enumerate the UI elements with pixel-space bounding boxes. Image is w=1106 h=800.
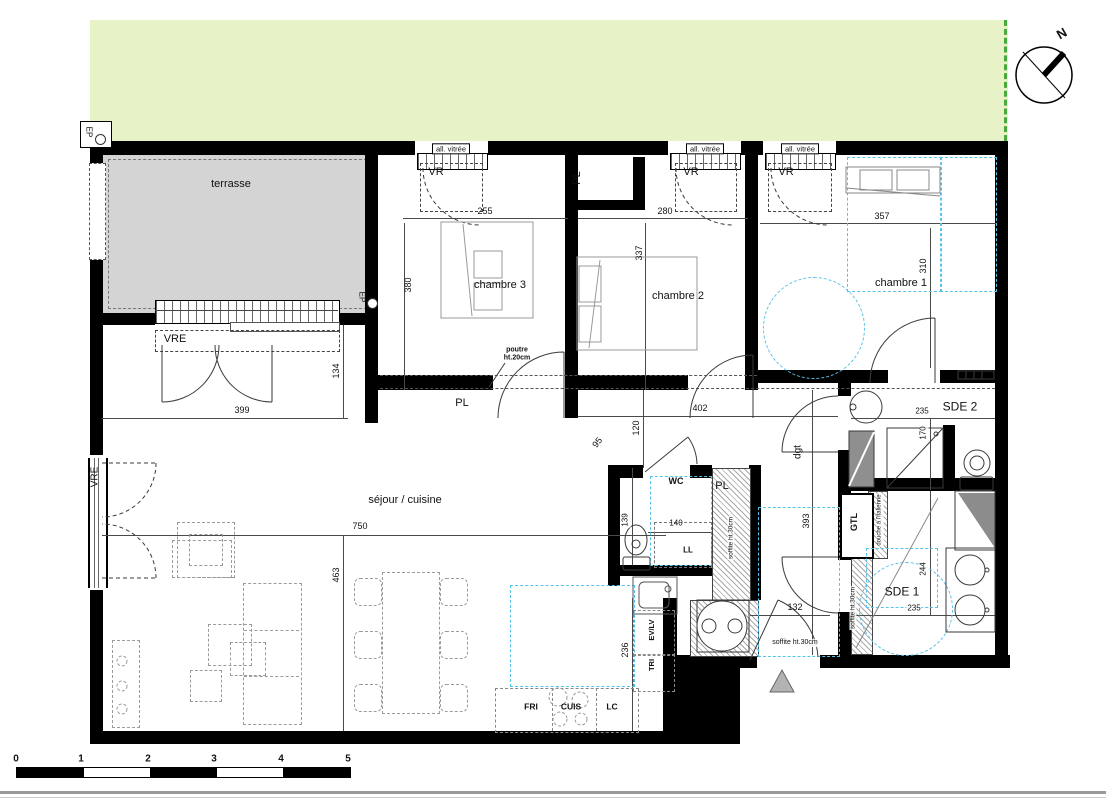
scale-bar	[16, 767, 351, 778]
closet-label-pl-shaft: PL	[715, 480, 728, 492]
furniture-chair	[354, 578, 382, 606]
scale-segment	[150, 768, 217, 777]
accessible-zone-dgt	[758, 507, 840, 657]
furniture-chair	[354, 684, 382, 712]
dim-140: 140	[669, 520, 682, 529]
turning-circle-ch1	[763, 277, 865, 379]
fixture-label-tri: TRI	[648, 659, 656, 671]
wall-segment	[838, 383, 851, 396]
closet-label-gtl: GTL	[850, 513, 860, 531]
dim-399: 399	[234, 406, 249, 416]
room-label-dgt: dgt	[793, 445, 804, 459]
annotation-douche-italienne: douche à l'italienne	[877, 493, 884, 546]
dim-236: 236	[621, 641, 631, 658]
scale-tick-2: 2	[145, 754, 151, 765]
dim-139: 139	[622, 512, 631, 527]
scale-tick-5: 5	[345, 754, 351, 765]
dim-line	[643, 390, 644, 468]
shaft-hatch-heater-alcove	[690, 600, 759, 657]
window-rail	[155, 310, 338, 311]
scale-tick-1: 1	[78, 754, 84, 765]
furniture-chair	[440, 684, 468, 712]
annotation-poutre: poutre ht.20cm	[504, 346, 530, 361]
window-label-vr-3: VR	[778, 166, 793, 178]
sde1-washbasins	[946, 548, 995, 632]
floor-plan: terrassechambre 3chambre 2chambre 1séjou…	[0, 0, 1106, 800]
dim-line	[578, 416, 838, 417]
window-label-vre-left: VRE	[90, 467, 101, 488]
scale-tick-3: 3	[211, 754, 217, 765]
compass-label-north: N	[1054, 25, 1069, 42]
wall-segment	[90, 258, 103, 455]
dim-310: 310	[919, 258, 929, 273]
furniture-plant	[112, 640, 140, 728]
drain-label-ep-1: EP	[84, 127, 93, 138]
dim-line	[404, 223, 405, 390]
dim-255: 255	[477, 207, 492, 217]
furniture-chair	[354, 631, 382, 659]
wall-segment	[488, 141, 668, 155]
dim-line	[102, 418, 348, 419]
dim-95: 95	[591, 436, 605, 450]
wall-segment	[608, 465, 643, 478]
furniture-sofa-cushion-line	[244, 676, 299, 677]
furniture-sofa	[243, 583, 302, 725]
kitchen-counter-divider	[596, 688, 597, 731]
fixture-label-ev-lv: EV/LV	[648, 619, 656, 640]
drain-label-ep-2: EP	[357, 292, 366, 303]
scale-segment	[17, 768, 84, 777]
wall-segment	[565, 153, 578, 418]
page-border	[0, 797, 1106, 798]
wall-segment	[851, 478, 995, 491]
site-boundary-line	[1004, 20, 1007, 141]
room-label-wc: WC	[669, 477, 684, 487]
room-label-sejour-cuisine: séjour / cuisine	[368, 494, 441, 506]
beam-line	[380, 388, 995, 389]
dim-170: 170	[920, 425, 929, 440]
wall-segment	[940, 370, 995, 383]
window-label-allege-1: all. vitrée	[432, 143, 470, 154]
room-label-chambre2: chambre 2	[652, 290, 704, 302]
scale-tick-4: 4	[278, 754, 284, 765]
fixture-label-fri: FRI	[524, 702, 538, 711]
ep-circle-topleft	[95, 134, 106, 145]
dim-line	[851, 418, 995, 419]
north-arrow-icon	[1044, 53, 1064, 75]
annotation-soffite-entry: soffite ht.30cm	[771, 639, 818, 647]
furniture-chair	[440, 578, 468, 606]
wardrobe-zone-ch1	[940, 157, 997, 292]
compass-icon	[1016, 47, 1072, 103]
dim-380: 380	[404, 277, 414, 292]
dim-line	[343, 325, 344, 418]
dim-line	[645, 223, 646, 390]
window-vre-terrasse	[155, 300, 340, 324]
window-label-vr-1: VR	[428, 166, 443, 178]
wall-segment	[820, 655, 1010, 668]
furniture-chair	[440, 631, 468, 659]
dim-line	[930, 418, 931, 490]
furniture-sofa-cushion-line	[244, 630, 299, 631]
scale-segment	[283, 768, 350, 777]
fixture-label-ll: LL	[683, 547, 693, 556]
dim-line	[578, 218, 748, 219]
window-label-vre-terrasse: VRE	[164, 333, 187, 345]
closet-label-pl-corridor: PL	[455, 397, 468, 409]
dim-750: 750	[352, 522, 367, 532]
dim-235-sde1: 235	[906, 605, 921, 614]
room-label-terrasse: terrasse	[211, 178, 251, 190]
window-label-allege-3: all. vitrée	[781, 143, 819, 154]
dim-line	[403, 218, 568, 219]
wall-segment	[745, 153, 758, 390]
scale-tick-0: 0	[13, 754, 19, 765]
furniture-side-table	[190, 670, 222, 702]
dim-235-sde2: 235	[914, 408, 929, 417]
wall-segment	[943, 425, 955, 491]
dim-244: 244	[920, 561, 929, 576]
dim-402: 402	[692, 404, 707, 414]
bed-chambre2	[577, 257, 697, 350]
wall-segment	[90, 313, 155, 325]
dim-357: 357	[874, 212, 889, 222]
terrace-wall-opening	[89, 163, 106, 260]
wall-segment	[836, 141, 1008, 155]
dim-393: 393	[802, 512, 812, 529]
window-label-vr-2: VR	[683, 166, 698, 178]
room-label-sde2: SDE 2	[943, 400, 978, 413]
dim-line	[343, 535, 344, 731]
fixture-label-cuis: CUIS	[561, 702, 581, 711]
room-label-sde1: SDE 1	[885, 585, 920, 598]
annotation-soffite-sde1: soffite ht.30cm	[849, 586, 856, 630]
dim-134: 134	[332, 363, 342, 378]
wall-segment	[633, 157, 645, 210]
accessible-zone-kitchen	[510, 585, 635, 687]
dim-120: 120	[632, 420, 642, 435]
kitchen-counter-divider	[552, 688, 553, 731]
ep-circle-terrasse	[367, 298, 378, 309]
wall-segment	[337, 313, 378, 325]
closet-label-pl-top: PL	[571, 171, 583, 184]
dim-463: 463	[332, 567, 342, 582]
annotation-soffite-shaft: soffite ht.30cm	[727, 516, 734, 560]
furniture-dining-table	[382, 572, 440, 714]
beam-line	[380, 375, 757, 376]
furniture-cabinet-inner	[189, 534, 223, 566]
lawn-area	[90, 20, 1008, 141]
page-border	[0, 791, 1106, 794]
wall-segment	[90, 590, 103, 744]
bed-chambre3	[441, 222, 533, 318]
fixture-label-lc: LC	[606, 702, 617, 711]
dim-280: 280	[657, 207, 672, 217]
scale-segment	[217, 768, 284, 777]
dim-132: 132	[787, 603, 802, 613]
scale-segment	[84, 768, 151, 777]
room-label-chambre1: chambre 1	[875, 277, 927, 289]
wc-toilet	[623, 525, 650, 570]
window-label-allege-2: all. vitrée	[686, 143, 724, 154]
room-label-chambre3: chambre 3	[474, 279, 526, 291]
dim-337: 337	[635, 245, 645, 260]
dim-line	[632, 468, 633, 565]
